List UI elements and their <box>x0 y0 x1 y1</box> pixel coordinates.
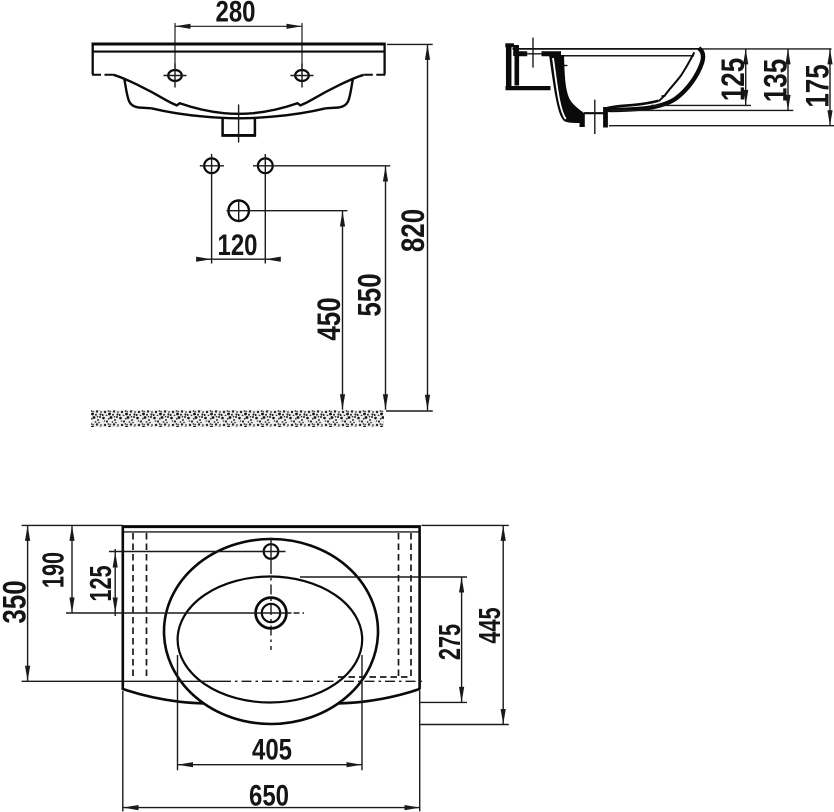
svg-text:125: 125 <box>715 58 751 101</box>
svg-text:135: 135 <box>758 59 794 102</box>
svg-text:175: 175 <box>800 64 834 107</box>
svg-text:445: 445 <box>472 607 507 643</box>
svg-text:350: 350 <box>0 580 33 623</box>
svg-text:405: 405 <box>252 732 292 766</box>
svg-text:275: 275 <box>432 624 467 660</box>
svg-text:650: 650 <box>249 778 289 812</box>
svg-text:280: 280 <box>215 0 255 28</box>
svg-text:120: 120 <box>217 227 257 261</box>
svg-text:125: 125 <box>83 565 118 601</box>
svg-text:550: 550 <box>352 273 388 316</box>
svg-text:820: 820 <box>395 209 431 252</box>
svg-text:450: 450 <box>311 297 347 340</box>
svg-text:190: 190 <box>36 552 71 588</box>
